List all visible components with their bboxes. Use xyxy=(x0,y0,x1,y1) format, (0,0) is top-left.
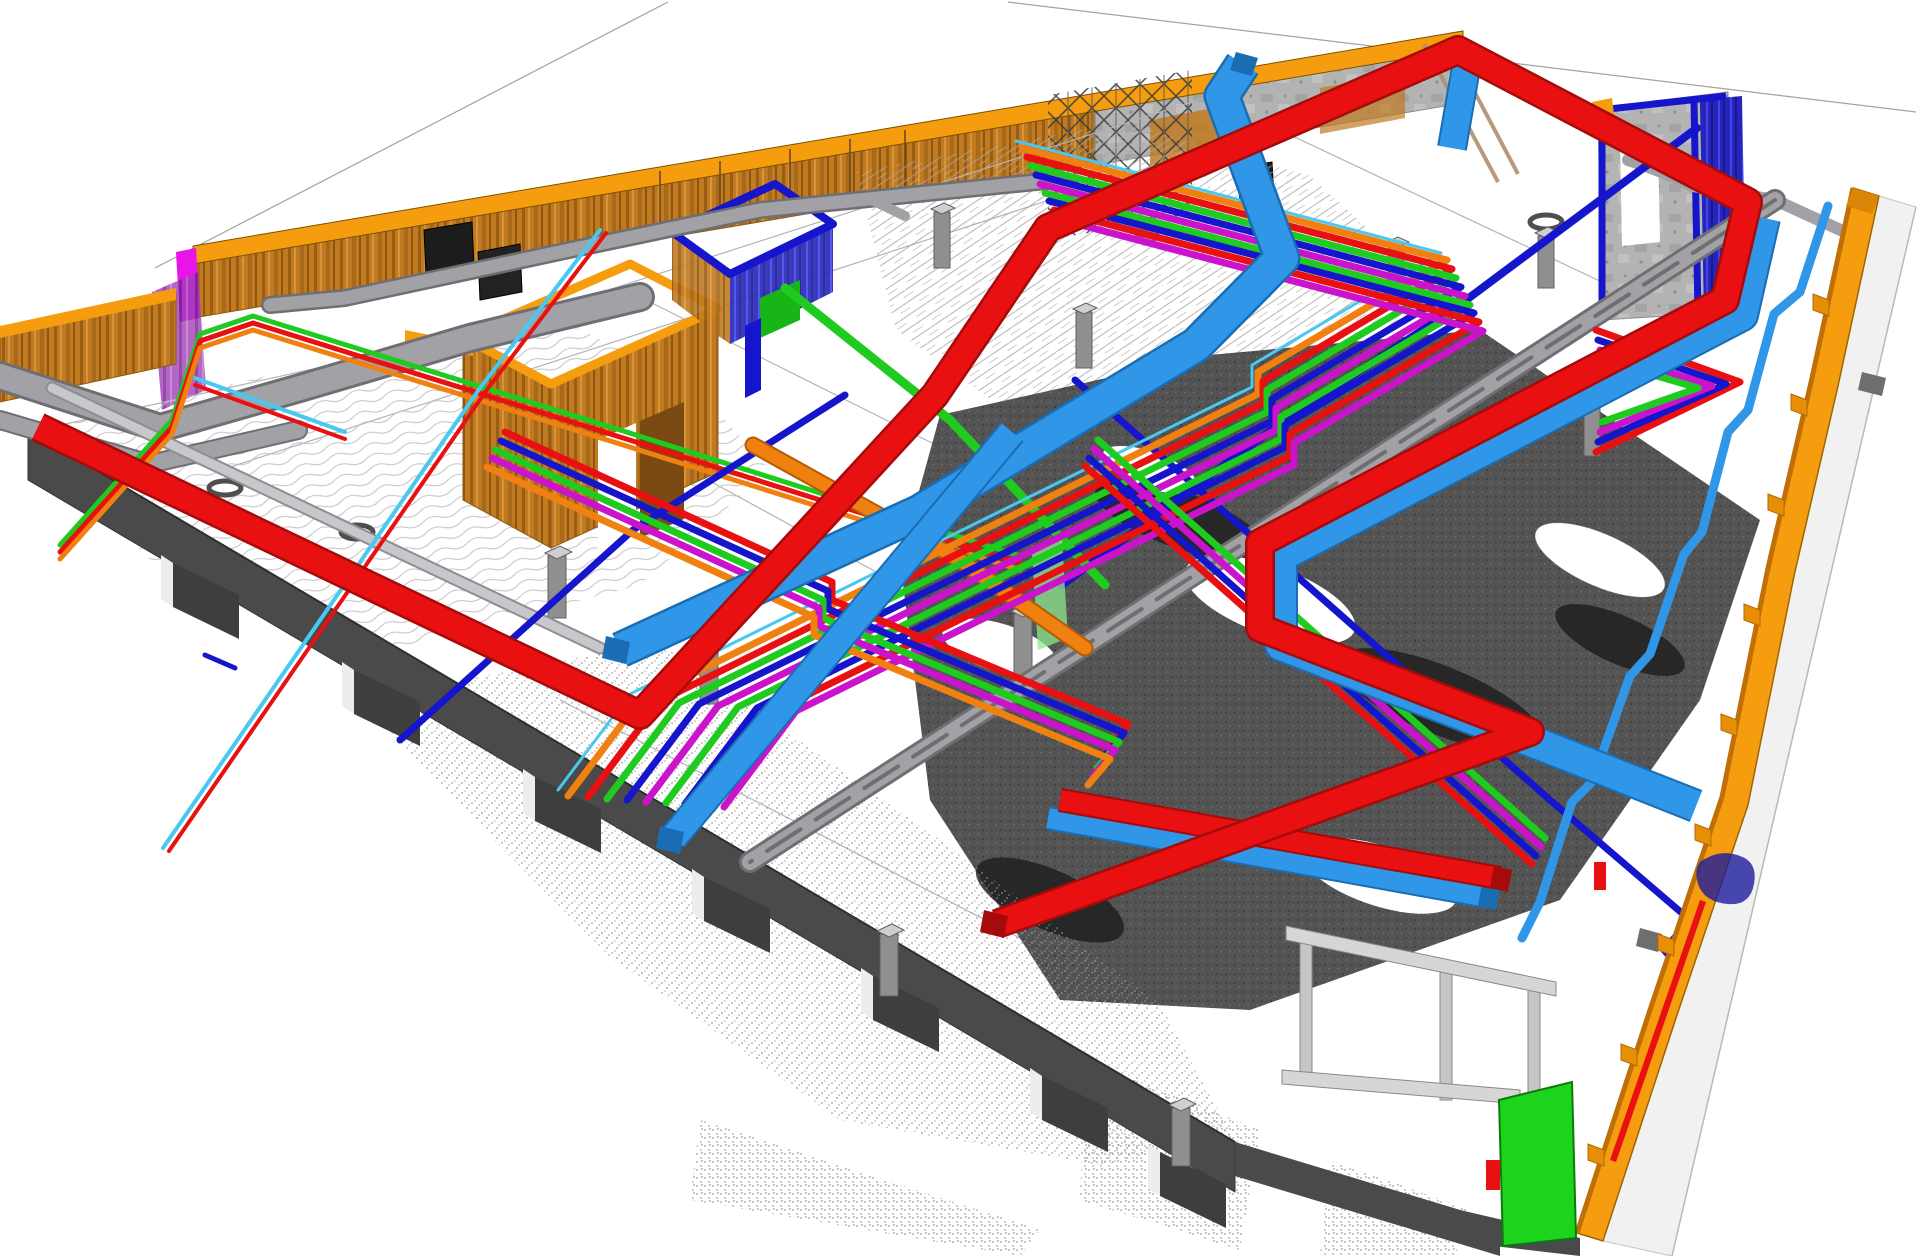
table-leg xyxy=(1300,938,1312,1082)
pipe-opening-ring xyxy=(209,481,241,495)
blue-room-door-bar[interactable] xyxy=(745,318,761,398)
pipe-opening-ring xyxy=(1530,215,1562,229)
green-end-panel[interactable] xyxy=(1499,1082,1576,1246)
model-canvas[interactable] xyxy=(0,0,1920,1256)
table-leg xyxy=(1440,968,1452,1100)
lb-duct-top-stub[interactable] xyxy=(1452,62,1467,148)
bim-3d-viewport[interactable] xyxy=(0,0,1920,1256)
red-device-box[interactable] xyxy=(1486,1160,1500,1190)
red-device-box[interactable] xyxy=(1594,862,1606,890)
